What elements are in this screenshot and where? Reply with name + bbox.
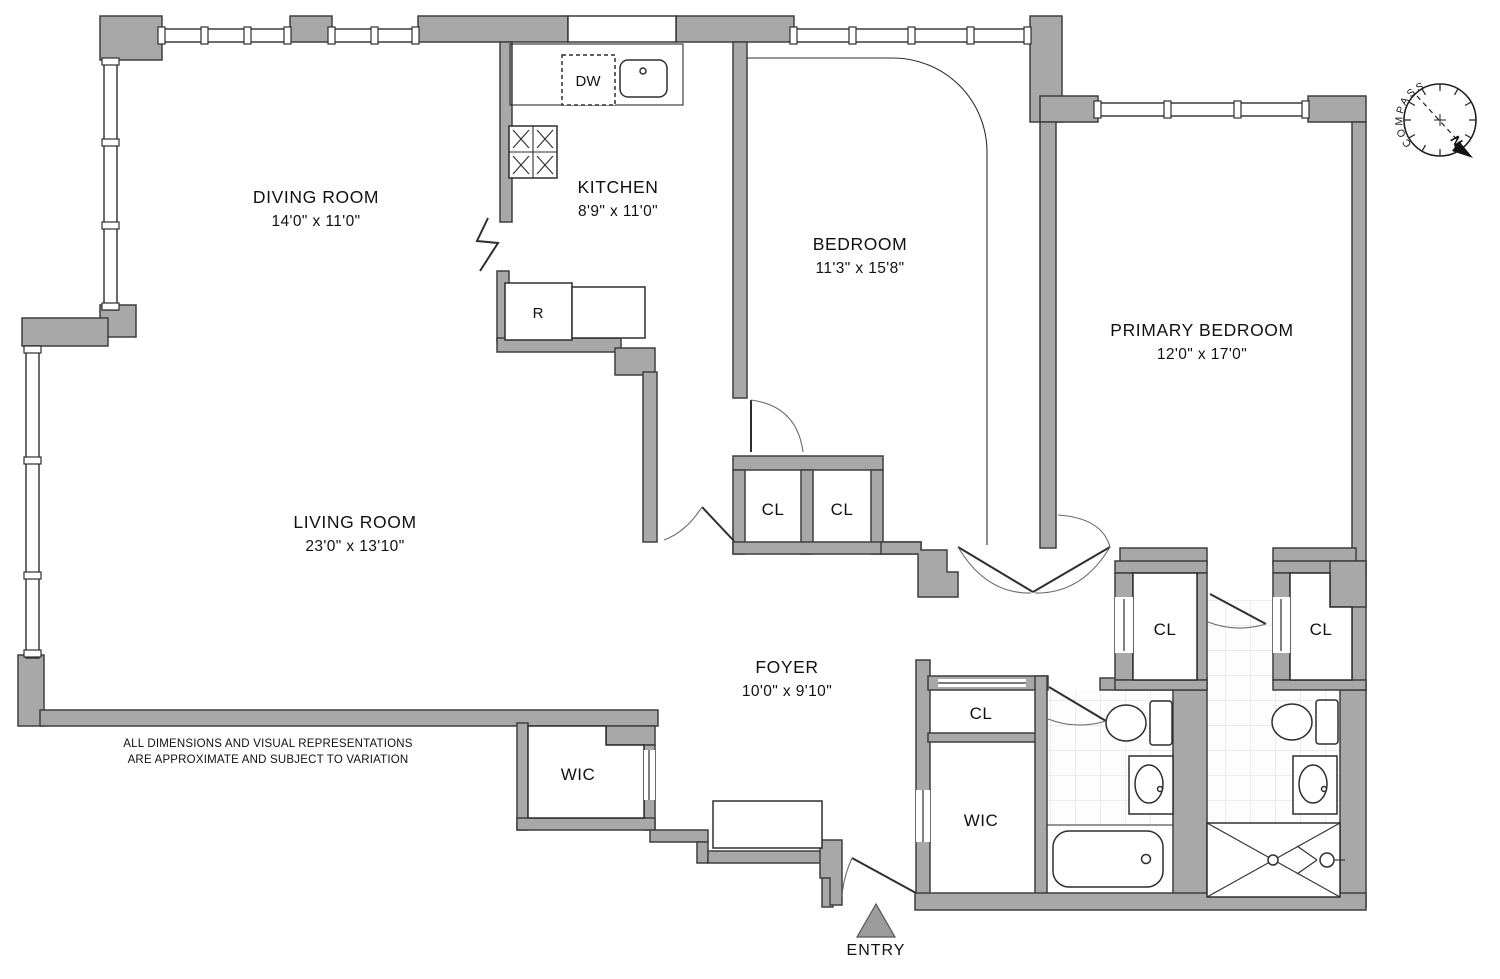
toilet-bowl xyxy=(1106,705,1146,741)
wic-label: WIC xyxy=(964,811,999,830)
room-dims-bedroom: 11'3" x 15'8" xyxy=(815,260,904,277)
entry-label: ENTRY xyxy=(847,942,906,959)
room-dims-kitchen: 8'9" x 11'0" xyxy=(578,203,658,220)
room-name-primary-bedroom: PRIMARY BEDROOM xyxy=(1110,320,1293,340)
toilet-tank xyxy=(1150,701,1172,745)
room-dims-primary-bedroom: 12'0" x 17'0" xyxy=(1157,346,1247,363)
closet-label: CL xyxy=(1154,620,1177,639)
window-living-left xyxy=(26,346,39,658)
disclaimer-line-2: ARE APPROXIMATE AND SUBJECT TO VARIATION xyxy=(128,754,409,766)
room-dims-living: 23'0" x 13'10" xyxy=(305,538,404,555)
kitchen-sink xyxy=(620,60,667,97)
shower-head xyxy=(1320,853,1334,867)
closet-label: CL xyxy=(762,500,785,519)
closet-label: CL xyxy=(831,500,854,519)
toilet-tank xyxy=(1316,700,1338,744)
room-name-bedroom: BEDROOM xyxy=(813,234,908,254)
window-dining-top xyxy=(162,29,290,42)
toilet-bowl xyxy=(1272,704,1312,740)
refrigerator-label: R xyxy=(533,305,544,322)
room-name-kitchen: KITCHEN xyxy=(577,177,658,197)
kitchen-counter-2 xyxy=(572,287,645,338)
floorplan-drawing: DIVING ROOM 14'0" x 11'0" KITCHEN 8'9" x… xyxy=(0,0,1500,979)
disclaimer-line-1: ALL DIMENSIONS AND VISUAL REPRESENTATION… xyxy=(123,738,413,750)
wic-label: WIC xyxy=(561,765,596,784)
sink-basin xyxy=(1299,765,1327,803)
window-dining-left xyxy=(104,60,117,310)
room-name-foyer: FOYER xyxy=(755,657,818,677)
sink-faucet xyxy=(1158,787,1163,792)
room-name-dining: DIVING ROOM xyxy=(253,187,379,207)
window-primary-top xyxy=(1098,103,1308,116)
kitchen-sink-faucet xyxy=(640,68,646,74)
floorplan-page: DIVING ROOM 14'0" x 11'0" KITCHEN 8'9" x… xyxy=(0,0,1500,979)
room-name-living: LIVING ROOM xyxy=(293,512,416,532)
room-dims-dining: 14'0" x 11'0" xyxy=(271,213,360,230)
closet-label: CL xyxy=(1310,620,1333,639)
closet-label: CL xyxy=(970,704,993,723)
shower-drain xyxy=(1268,855,1278,865)
sink-faucet xyxy=(1322,787,1327,792)
window-kitchen-top xyxy=(568,16,676,42)
bathtub-drain xyxy=(1142,855,1151,864)
sink-basin xyxy=(1135,765,1163,803)
room-dims-foyer: 10'0" x 9'10" xyxy=(742,683,832,700)
dishwasher-label: DW xyxy=(576,73,602,90)
entry-niche xyxy=(713,801,822,848)
